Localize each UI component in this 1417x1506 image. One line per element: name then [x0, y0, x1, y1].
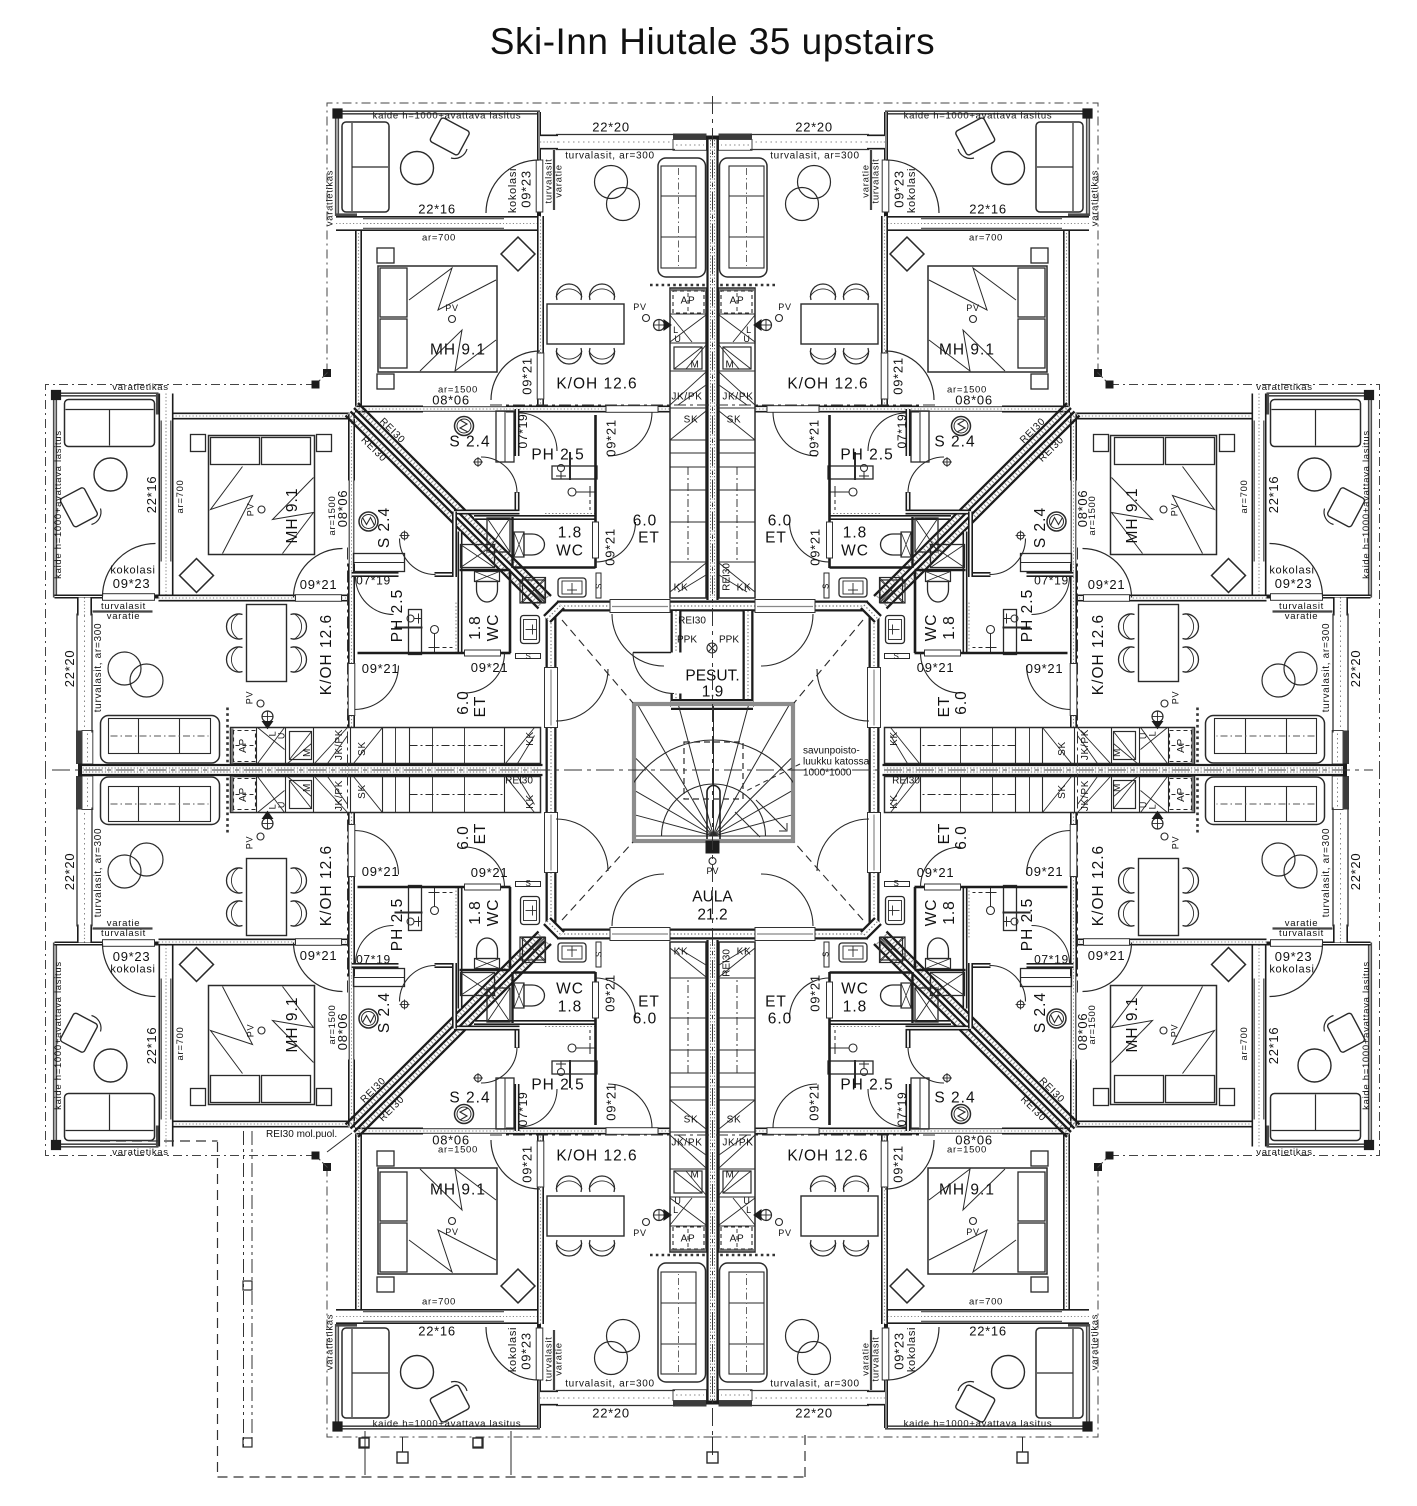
svg-text:KK: KK [674, 947, 689, 958]
svg-text:S: S [822, 583, 831, 589]
svg-text:kokolasi: kokolasi [507, 1327, 519, 1372]
svg-text:S 2.4: S 2.4 [449, 434, 490, 451]
svg-text:22*20: 22*20 [592, 120, 629, 135]
svg-text:KK: KK [525, 731, 536, 746]
svg-text:08*06: 08*06 [335, 1013, 350, 1050]
svg-text:JK/PK: JK/PK [671, 392, 702, 403]
svg-text:varatietikas: varatietikas [1256, 1147, 1312, 1158]
svg-text:JK/PK: JK/PK [722, 392, 753, 403]
svg-text:turvalasit, ar=300: turvalasit, ar=300 [565, 1379, 655, 1390]
svg-text:PH 2.5: PH 2.5 [389, 589, 406, 642]
svg-text:AP: AP [238, 787, 249, 802]
svg-text:K/OH 12.6: K/OH 12.6 [318, 845, 335, 926]
svg-text:MH 9.1: MH 9.1 [430, 1182, 486, 1199]
svg-text:6.0: 6.0 [455, 690, 472, 715]
svg-text:U: U [1139, 732, 1149, 739]
svg-text:09*23: 09*23 [1275, 949, 1312, 964]
svg-text:kokolasi: kokolasi [1269, 964, 1314, 976]
svg-text:22*16: 22*16 [418, 1324, 455, 1339]
svg-text:K/OH 12.6: K/OH 12.6 [1090, 845, 1107, 926]
svg-text:varatie: varatie [107, 918, 140, 929]
svg-text:ET: ET [936, 696, 953, 718]
svg-text:turvalasit, ar=300: turvalasit, ar=300 [1321, 623, 1332, 713]
svg-text:09*23: 09*23 [519, 1332, 534, 1369]
svg-text:PV: PV [1171, 836, 1181, 849]
svg-text:08*06: 08*06 [432, 393, 469, 408]
svg-text:varatie: varatie [554, 1342, 565, 1375]
svg-text:PV: PV [633, 302, 646, 312]
svg-text:MH 9.1: MH 9.1 [284, 488, 301, 544]
svg-text:varatie: varatie [1285, 918, 1318, 929]
svg-text:S 2.4: S 2.4 [449, 1090, 490, 1107]
svg-text:Ski-Inn Hiutale 35 upstairs: Ski-Inn Hiutale 35 upstairs [490, 21, 935, 62]
svg-text:ar=700: ar=700 [969, 233, 1003, 244]
svg-text:turvalasit: turvalasit [101, 928, 146, 939]
svg-text:PV: PV [778, 1228, 791, 1238]
svg-text:PV: PV [246, 503, 256, 516]
svg-text:WC: WC [841, 981, 869, 998]
svg-text:AP: AP [238, 738, 249, 753]
svg-text:WC: WC [556, 981, 584, 998]
svg-text:PV: PV [445, 1227, 458, 1237]
svg-text:22*16: 22*16 [969, 1324, 1006, 1339]
svg-text:22*16: 22*16 [144, 1027, 159, 1064]
svg-text:SK: SK [1057, 741, 1068, 756]
svg-text:REI30 mol.puol.: REI30 mol.puol. [266, 1129, 337, 1140]
svg-text:SK: SK [727, 415, 742, 426]
svg-text:turvalasit: turvalasit [1279, 928, 1324, 939]
svg-text:SK: SK [684, 415, 699, 426]
svg-text:KK: KK [525, 794, 536, 809]
svg-text:KK: KK [889, 731, 900, 746]
svg-text:09*23: 09*23 [113, 576, 150, 591]
svg-text:S: S [893, 879, 899, 888]
svg-text:22*20: 22*20 [795, 1406, 832, 1421]
svg-text:JK/PK: JK/PK [1080, 729, 1091, 760]
svg-text:U: U [674, 1196, 681, 1206]
svg-text:09*21: 09*21 [891, 1145, 906, 1182]
svg-text:22*20: 22*20 [62, 650, 77, 687]
svg-text:AP: AP [681, 296, 696, 307]
svg-text:09*23: 09*23 [1275, 576, 1312, 591]
svg-text:SK: SK [1057, 784, 1068, 799]
svg-text:22*16: 22*16 [1266, 476, 1281, 513]
svg-text:kaide h=1000+avattava lasitu: kaide h=1000+avattava lasitus [904, 1419, 1053, 1430]
svg-text:08*06: 08*06 [432, 1133, 469, 1148]
svg-text:1.8: 1.8 [558, 525, 583, 542]
svg-text:REI30: REI30 [722, 563, 733, 591]
svg-text:PV: PV [246, 1024, 256, 1037]
svg-text:ar=700: ar=700 [175, 1026, 186, 1060]
svg-text:ar=700: ar=700 [969, 1297, 1003, 1308]
svg-text:09*21: 09*21 [362, 864, 399, 879]
svg-text:turvalasit, ar=300: turvalasit, ar=300 [93, 828, 104, 918]
svg-text:U: U [674, 334, 681, 344]
svg-text:09*21: 09*21 [917, 660, 954, 675]
svg-text:K/OH 12.6: K/OH 12.6 [1090, 614, 1107, 695]
svg-text:07*19: 07*19 [516, 414, 530, 449]
svg-text:22*20: 22*20 [795, 120, 832, 135]
svg-text:S: S [525, 652, 531, 661]
svg-text:kaide h=1000+avattava lasitu: kaide h=1000+avattava lasitus [53, 961, 64, 1110]
svg-text:S: S [595, 583, 604, 589]
svg-text:K/OH 12.6: K/OH 12.6 [318, 614, 335, 695]
svg-text:1.8: 1.8 [467, 615, 484, 640]
svg-text:varatie: varatie [861, 164, 872, 197]
svg-text:09*21: 09*21 [1088, 577, 1125, 592]
svg-text:MH 9.1: MH 9.1 [1124, 997, 1141, 1053]
svg-text:S 2.4: S 2.4 [1032, 507, 1049, 548]
svg-text:WC: WC [485, 614, 502, 642]
svg-text:22*20: 22*20 [1348, 650, 1363, 687]
svg-text:PV: PV [1170, 1024, 1180, 1037]
svg-text:09*21: 09*21 [917, 865, 954, 880]
svg-text:ET: ET [638, 994, 660, 1011]
svg-text:K/OH 12.6: K/OH 12.6 [556, 376, 637, 393]
svg-text:07*19: 07*19 [895, 414, 909, 449]
svg-text:MH 9.1: MH 9.1 [284, 997, 301, 1053]
svg-text:09*21: 09*21 [807, 1083, 822, 1120]
svg-text:1000*1000: 1000*1000 [803, 768, 852, 779]
svg-text:22*16: 22*16 [1266, 1027, 1281, 1064]
svg-text:ar=700: ar=700 [422, 1297, 456, 1308]
svg-text:08*06: 08*06 [1075, 490, 1090, 527]
svg-text:U: U [1139, 801, 1149, 808]
svg-text:JK/PK: JK/PK [1080, 780, 1091, 811]
svg-text:M: M [725, 1170, 734, 1181]
svg-text:1.8: 1.8 [843, 999, 868, 1016]
svg-text:kokolasi: kokolasi [906, 1327, 918, 1372]
svg-text:S: S [822, 951, 831, 957]
svg-text:09*21: 09*21 [603, 974, 618, 1011]
svg-text:kokolasi: kokolasi [110, 964, 155, 976]
svg-text:kaide h=1000+avattava lasitu: kaide h=1000+avattava lasitus [904, 111, 1053, 122]
svg-text:M: M [302, 783, 313, 792]
svg-text:PH 2.5: PH 2.5 [531, 1077, 584, 1094]
svg-text:22*20: 22*20 [1348, 853, 1363, 890]
svg-text:07*19: 07*19 [516, 1092, 530, 1127]
svg-text:1.8: 1.8 [941, 900, 958, 925]
svg-text:L: L [1148, 731, 1158, 737]
svg-text:ET: ET [472, 823, 489, 845]
svg-text:AP: AP [1176, 738, 1187, 753]
svg-text:turvalasit, ar=300: turvalasit, ar=300 [770, 151, 860, 162]
svg-text:08*06: 08*06 [1075, 1013, 1090, 1050]
svg-text:09*21: 09*21 [808, 974, 823, 1011]
svg-text:09*21: 09*21 [520, 357, 535, 394]
svg-text:kokolasi: kokolasi [110, 565, 155, 577]
svg-text:PH 2.5: PH 2.5 [1019, 898, 1036, 951]
svg-text:turvalasit, ar=300: turvalasit, ar=300 [770, 1379, 860, 1390]
svg-text:AP: AP [1176, 787, 1187, 802]
svg-text:PV: PV [445, 303, 458, 313]
svg-text:varatie: varatie [1285, 611, 1318, 622]
svg-text:SK: SK [684, 1115, 699, 1126]
svg-text:PH 2.5: PH 2.5 [531, 447, 584, 464]
svg-text:6.0: 6.0 [768, 1011, 793, 1028]
svg-text:SK: SK [357, 784, 368, 799]
svg-text:WC: WC [923, 614, 940, 642]
svg-text:turvalasit, ar=300: turvalasit, ar=300 [93, 623, 104, 713]
svg-text:PH 2.5: PH 2.5 [389, 898, 406, 951]
svg-text:09*21: 09*21 [471, 660, 508, 675]
svg-text:M: M [690, 360, 699, 371]
svg-text:09*21: 09*21 [603, 528, 618, 565]
svg-text:1.8: 1.8 [558, 999, 583, 1016]
svg-text:kaide h=1000+avattava lasitu: kaide h=1000+avattava lasitus [373, 111, 522, 122]
svg-text:22*20: 22*20 [62, 853, 77, 890]
svg-text:PV: PV [778, 302, 791, 312]
svg-text:09*21: 09*21 [362, 661, 399, 676]
svg-text:ET: ET [936, 823, 953, 845]
svg-text:varatietikas: varatietikas [325, 1314, 336, 1370]
svg-text:turvalasit, ar=300: turvalasit, ar=300 [1321, 828, 1332, 918]
svg-text:KK: KK [674, 583, 689, 594]
svg-text:AP: AP [681, 1234, 696, 1245]
svg-text:09*21: 09*21 [471, 865, 508, 880]
svg-text:PV: PV [245, 836, 255, 849]
svg-text:JK/PK: JK/PK [722, 1138, 753, 1149]
svg-text:09*23: 09*23 [892, 170, 907, 207]
svg-text:09*23: 09*23 [113, 949, 150, 964]
svg-text:MH 9.1: MH 9.1 [1124, 488, 1141, 544]
svg-text:JK/PK: JK/PK [334, 780, 345, 811]
svg-text:6.0: 6.0 [455, 825, 472, 850]
svg-text:09*21: 09*21 [300, 577, 337, 592]
svg-text:turvalasit, ar=300: turvalasit, ar=300 [565, 151, 655, 162]
svg-text:WC: WC [556, 543, 584, 560]
svg-text:ET: ET [638, 530, 660, 547]
svg-text:S: S [893, 652, 899, 661]
svg-text:S 2.4: S 2.4 [934, 1090, 975, 1107]
svg-text:07*19: 07*19 [895, 1092, 909, 1127]
svg-text:09*23: 09*23 [519, 170, 534, 207]
svg-text:L: L [746, 1205, 752, 1215]
svg-text:WC: WC [485, 899, 502, 927]
svg-text:MH 9.1: MH 9.1 [430, 342, 486, 359]
svg-text:S 2.4: S 2.4 [934, 434, 975, 451]
svg-text:ET: ET [765, 530, 787, 547]
svg-text:22*16: 22*16 [418, 202, 455, 217]
svg-text:PV: PV [1170, 503, 1180, 516]
svg-text:U: U [743, 1196, 750, 1206]
svg-text:1.8: 1.8 [843, 525, 868, 542]
svg-text:PH 2.5: PH 2.5 [840, 1077, 893, 1094]
svg-text:varatietikas: varatietikas [1256, 382, 1312, 393]
svg-text:22*16: 22*16 [144, 476, 159, 513]
svg-text:08*06: 08*06 [955, 1133, 992, 1148]
svg-text:09*21: 09*21 [807, 419, 822, 456]
svg-text:M: M [690, 1170, 699, 1181]
svg-text:08*06: 08*06 [335, 490, 350, 527]
svg-text:ar=700: ar=700 [1239, 479, 1250, 513]
svg-text:JK/PK: JK/PK [671, 1138, 702, 1149]
svg-text:PV: PV [966, 1227, 979, 1237]
svg-text:09*21: 09*21 [520, 1145, 535, 1182]
svg-text:varatie: varatie [554, 164, 565, 197]
svg-text:09*21: 09*21 [300, 948, 337, 963]
svg-text:S 2.4: S 2.4 [1032, 992, 1049, 1033]
svg-text:09*21: 09*21 [1026, 661, 1063, 676]
svg-text:REI30: REI30 [505, 776, 533, 787]
svg-text:kaide h=1000+avattava lasitu: kaide h=1000+avattava lasitus [53, 430, 64, 579]
svg-text:MH 9.1: MH 9.1 [939, 342, 995, 359]
svg-text:22*20: 22*20 [592, 1406, 629, 1421]
svg-text:07*19: 07*19 [356, 953, 391, 967]
svg-text:PH 2.5: PH 2.5 [1019, 589, 1036, 642]
svg-text:M: M [1112, 748, 1123, 757]
svg-text:WC: WC [923, 899, 940, 927]
svg-text:SK: SK [727, 1115, 742, 1126]
svg-text:07*19: 07*19 [1034, 574, 1069, 588]
svg-text:07*19: 07*19 [1034, 953, 1069, 967]
svg-text:S: S [595, 951, 604, 957]
svg-text:ar=700: ar=700 [1239, 1026, 1250, 1060]
svg-text:JK/PK: JK/PK [334, 729, 345, 760]
svg-text:varatietikas: varatietikas [112, 1147, 168, 1158]
svg-text:PV: PV [966, 303, 979, 313]
svg-text:varatietikas: varatietikas [112, 382, 168, 393]
svg-text:K/OH 12.6: K/OH 12.6 [787, 376, 868, 393]
svg-text:L: L [673, 1205, 679, 1215]
svg-text:REI30: REI30 [678, 616, 706, 627]
svg-text:varatietikas: varatietikas [325, 170, 336, 226]
svg-text:6.0: 6.0 [953, 690, 970, 715]
svg-text:6.0: 6.0 [768, 513, 793, 530]
svg-text:ar=700: ar=700 [422, 233, 456, 244]
svg-text:K/OH 12.6: K/OH 12.6 [787, 1148, 868, 1165]
svg-text:AP: AP [730, 296, 745, 307]
svg-text:07*19: 07*19 [356, 574, 391, 588]
svg-text:09*21: 09*21 [604, 419, 619, 456]
svg-text:REI30: REI30 [892, 776, 920, 787]
svg-text:M: M [725, 360, 734, 371]
svg-text:U: U [277, 732, 287, 739]
svg-text:09*21: 09*21 [604, 1083, 619, 1120]
svg-text:kokolasi: kokolasi [1269, 565, 1314, 577]
svg-text:kokolasi: kokolasi [906, 168, 918, 213]
svg-text:SK: SK [357, 741, 368, 756]
svg-text:WC: WC [841, 543, 869, 560]
svg-text:ET: ET [472, 696, 489, 718]
svg-text:kaide h=1000+avattava lasitu: kaide h=1000+avattava lasitus [1361, 430, 1372, 579]
svg-text:6.0: 6.0 [633, 513, 658, 530]
svg-text:09*21: 09*21 [1026, 864, 1063, 879]
svg-text:S 2.4: S 2.4 [376, 507, 393, 548]
svg-text:22*16: 22*16 [969, 202, 1006, 217]
svg-text:PH 2.5: PH 2.5 [840, 447, 893, 464]
svg-text:luukku katossa: luukku katossa [803, 757, 870, 768]
svg-text:K/OH 12.6: K/OH 12.6 [556, 1148, 637, 1165]
svg-text:M: M [1112, 783, 1123, 792]
svg-text:REI30: REI30 [722, 949, 733, 977]
svg-text:PV: PV [633, 1228, 646, 1238]
svg-text:KK: KK [737, 947, 752, 958]
svg-text:08*06: 08*06 [955, 393, 992, 408]
svg-text:6.0: 6.0 [633, 1011, 658, 1028]
svg-text:turvalasit: turvalasit [871, 158, 882, 203]
svg-text:09*21: 09*21 [891, 357, 906, 394]
svg-text:KK: KK [737, 583, 752, 594]
svg-text:S: S [525, 879, 531, 888]
svg-text:09*21: 09*21 [1088, 948, 1125, 963]
svg-text:PPK: PPK [719, 635, 739, 646]
svg-text:S 2.4: S 2.4 [376, 992, 393, 1033]
svg-text:09*23: 09*23 [892, 1332, 907, 1369]
svg-text:PV: PV [1171, 691, 1181, 704]
svg-text:savunpoisto-: savunpoisto- [803, 746, 860, 757]
svg-text:6.0: 6.0 [953, 825, 970, 850]
svg-text:kaide h=1000+avattava lasitu: kaide h=1000+avattava lasitus [373, 1419, 522, 1430]
svg-text:ar=700: ar=700 [175, 479, 186, 513]
svg-text:varatie: varatie [861, 1342, 872, 1375]
svg-text:PV: PV [245, 691, 255, 704]
svg-text:1.8: 1.8 [941, 615, 958, 640]
svg-text:MH 9.1: MH 9.1 [939, 1182, 995, 1199]
svg-text:U: U [743, 334, 750, 344]
svg-text:M: M [302, 748, 313, 757]
svg-text:turvalasit: turvalasit [871, 1336, 882, 1381]
svg-text:kaide h=1000+avattava lasitu: kaide h=1000+avattava lasitus [1361, 961, 1372, 1110]
svg-text:varatietikas: varatietikas [1090, 170, 1101, 226]
svg-text:L: L [1148, 804, 1158, 810]
svg-text:kokolasi: kokolasi [507, 168, 519, 213]
svg-text:ET: ET [765, 994, 787, 1011]
svg-text:AP: AP [730, 1234, 745, 1245]
svg-text:KK: KK [889, 794, 900, 809]
svg-text:09*21: 09*21 [808, 528, 823, 565]
svg-text:varatietikas: varatietikas [1090, 1314, 1101, 1370]
svg-text:1.8: 1.8 [467, 900, 484, 925]
svg-text:varatie: varatie [107, 611, 140, 622]
svg-text:U: U [277, 801, 287, 808]
svg-text:PPK: PPK [677, 635, 697, 646]
